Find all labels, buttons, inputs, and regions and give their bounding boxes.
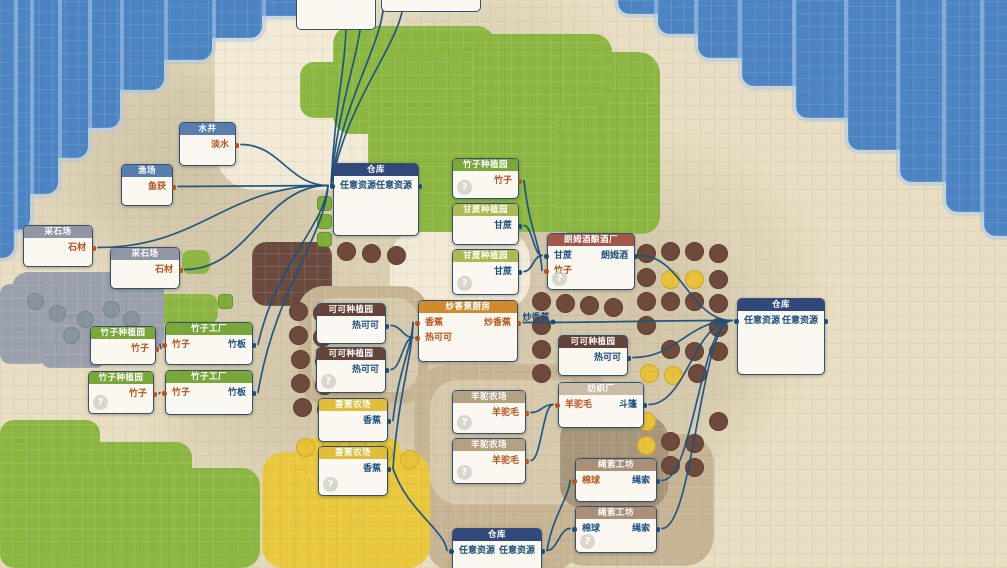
node-io-row: 香蕉 [319,414,387,429]
node-body: 热可可 [317,316,385,334]
question-badge-icon[interactable]: ? [93,395,108,410]
building-node-tex[interactable]: 纺织厂羊驼毛斗篷 [558,382,644,428]
node-io-row: 淡水 [180,138,235,153]
question-badge-icon[interactable]: ? [457,180,472,195]
node-io-row: 任意资源任意资源 [334,179,418,194]
output-resource[interactable]: 竹子 [131,342,149,357]
node-title: 竹子工厂 [166,371,252,383]
input-resource[interactable]: 任意资源 [340,179,376,194]
input-resource[interactable]: 香蕉 [425,316,443,331]
output-resource[interactable]: 任意资源 [376,179,412,194]
output-resource[interactable]: 甘蔗 [494,265,512,280]
route-resource-label: 炒香蕉 [522,310,549,323]
node-body: 棉球绳索 [576,471,656,489]
input-resource[interactable]: 竹子 [172,386,190,401]
node-io-row: 香蕉 [319,462,387,477]
input-resource[interactable]: 竹子 [172,338,190,353]
building-node-ban1[interactable]: 香蕉农场香蕉 [318,398,388,442]
node-io-row: 任意资源任意资源 [738,314,824,329]
output-resource[interactable]: 斗篷 [619,398,637,413]
node-body: 香蕉 [319,411,387,429]
input-resource[interactable]: 任意资源 [459,544,495,559]
output-resource[interactable]: 淡水 [211,138,229,153]
route-line [524,256,542,272]
building-node-wr[interactable]: 仓库任意资源任意资源 [737,298,825,375]
building-node-alp1[interactable]: 羊驼农场羊驼毛? [452,390,526,434]
building-node-bf1[interactable]: 竹子工厂竹子竹板 [165,322,253,365]
node-io-row: 甘蔗 [453,219,518,234]
output-resource[interactable]: 热可可 [352,319,379,334]
building-node-quarry2[interactable]: 采石场石材 [110,247,180,289]
node-title: 绳索工坊 [576,459,656,471]
output-resource[interactable]: 朗姆酒 [601,249,628,264]
input-resource[interactable]: 棉球 [582,474,600,489]
node-body: 竹子竹板 [166,335,252,353]
output-resource[interactable]: 竹板 [228,338,246,353]
building-node-rope1[interactable]: 绳索工坊棉球绳索 [575,458,657,502]
output-resource[interactable]: 甘蔗 [494,219,512,234]
node-title: 羊驼农场 [453,391,525,403]
node-title: 竹子种植园 [91,327,155,339]
node-body: 任意资源任意资源 [453,541,541,559]
node-title: 炒香蕉厨房 [419,301,517,313]
question-badge-icon[interactable]: ? [580,534,595,549]
question-badge-icon[interactable]: ? [552,271,567,286]
node-io-row: 竹子 [91,342,155,357]
node-io-row: 热可可 [419,331,517,346]
node-io-row: 竹子竹板 [166,386,252,401]
node-title: 香蕉农场 [319,447,387,459]
output-resource[interactable]: 石材 [68,241,86,256]
route-line [393,469,447,551]
building-node-cane1[interactable]: 甘蔗种植园甘蔗 [452,203,519,245]
building-node-well[interactable]: 水井淡水 [179,122,236,166]
output-resource[interactable]: 绳索 [632,474,650,489]
input-resource[interactable]: 羊驼毛 [565,398,592,413]
node-title: 甘蔗种植园 [453,204,518,216]
game-map-viewport[interactable]: 水井淡水渔场鱼获采石场石材采石场石材仓库任意资源任意资源竹子种植园竹子?甘蔗种植… [0,0,1007,568]
node-title: 朗姆酒酿酒厂 [548,234,634,246]
node-title: 水井 [180,123,235,135]
route-line [241,145,328,186]
building-node-bp1[interactable]: 竹子种植园竹子? [452,158,519,199]
question-badge-icon[interactable]: ? [323,477,338,492]
node-body: 任意资源任意资源 [334,176,418,194]
building-node-quarry1[interactable]: 采石场石材 [23,225,93,267]
building-node-cane2[interactable]: 甘蔗种植园甘蔗? [452,249,519,295]
node-body: 香蕉炒香蕉热可可 [419,313,517,346]
question-badge-icon[interactable]: ? [457,276,472,291]
offscreen-node-partial[interactable] [296,0,376,30]
node-title: 渔场 [122,165,172,177]
node-body: 竹子竹板 [166,383,252,401]
node-title: 香蕉农场 [319,399,387,411]
output-resource[interactable]: 热可可 [352,363,379,378]
building-node-bp3[interactable]: 竹子种植园竹子? [88,371,154,414]
building-node-kitchen[interactable]: 炒香蕉厨房香蕉炒香蕉热可可 [418,300,518,362]
node-body: 任意资源任意资源 [738,311,824,329]
node-io-row: 石材 [111,263,179,278]
node-io-row: 羊驼毛斗篷 [559,398,643,413]
node-io-row: 鱼获 [122,180,172,195]
output-resource[interactable]: 羊驼毛 [492,454,519,469]
building-node-fishery[interactable]: 渔场鱼获 [121,164,173,206]
node-title: 竹子种植园 [89,372,153,384]
input-resource[interactable]: 热可可 [425,331,452,346]
building-node-alp2[interactable]: 羊驼农场羊驼毛? [452,438,526,484]
input-resource[interactable]: 甘蔗 [554,249,572,264]
node-title: 绳索工坊 [576,507,656,519]
output-resource[interactable]: 热可可 [594,351,621,366]
node-body: 羊驼毛斗篷 [559,395,643,413]
output-resource[interactable]: 炒香蕉 [484,316,511,331]
output-resource[interactable]: 石材 [155,263,173,278]
route-line [160,345,161,349]
node-body: 甘蔗 [453,216,518,234]
output-resource[interactable]: 竹板 [228,386,246,401]
output-resource[interactable]: 任意资源 [782,314,818,329]
node-title: 采石场 [24,226,92,238]
building-node-cocoa2[interactable]: 可可种植园热可可? [316,347,386,393]
question-badge-icon[interactable]: ? [321,374,336,389]
route-line [159,393,160,394]
node-title: 羊驼农场 [453,439,525,451]
output-resource[interactable]: 绳索 [632,522,650,537]
route-line [640,256,732,321]
node-title: 可可种植园 [317,348,385,360]
building-node-rope2[interactable]: 绳索工坊棉球绳索? [575,506,657,553]
node-io-row: 竹子竹板 [166,338,252,353]
node-io-row: 石材 [24,241,92,256]
node-body: 石材 [24,238,92,256]
node-title: 仓库 [334,164,418,176]
node-io-row: 热可可 [559,351,627,366]
building-node-cocoa3[interactable]: 可可种植园热可可 [558,335,628,376]
output-resource[interactable]: 竹子 [129,387,147,402]
output-resource[interactable]: 香蕉 [363,414,381,429]
node-io-row: 棉球绳索 [576,474,656,489]
input-resource[interactable]: 任意资源 [744,314,780,329]
node-title: 纺织厂 [559,383,643,395]
offscreen-node-partial[interactable] [381,0,481,12]
route-line [547,529,570,551]
node-title: 甘蔗种植园 [453,250,518,262]
output-resource[interactable]: 鱼获 [148,180,166,195]
node-body: 淡水 [180,135,235,153]
building-node-dist[interactable]: 朗姆酒酿酒厂甘蔗朗姆酒竹子? [547,233,635,290]
building-node-cocoa1[interactable]: 可可种植园热可可 [316,303,386,344]
node-title: 仓库 [738,299,824,311]
node-body: 鱼获 [122,177,172,195]
node-body: 香蕉 [319,459,387,477]
route-line [391,326,413,338]
output-resource[interactable]: 竹子 [494,174,512,189]
node-io-row: 香蕉炒香蕉 [419,316,517,331]
output-resource[interactable]: 任意资源 [499,544,535,559]
node-body: 石材 [111,260,179,278]
question-badge-icon[interactable]: ? [457,465,472,480]
question-badge-icon[interactable]: ? [457,415,472,430]
route-waypoint-dot [551,320,556,325]
building-node-wc[interactable]: 仓库任意资源任意资源 [333,163,419,236]
output-resource[interactable]: 羊驼毛 [492,406,519,421]
building-node-bf2[interactable]: 竹子工厂竹子竹板 [165,370,253,415]
building-node-wb[interactable]: 仓库任意资源任意资源 [452,528,542,568]
node-io-row: 热可可 [317,319,385,334]
node-title: 采石场 [111,248,179,260]
node-body: 竹子 [91,339,155,357]
node-title: 仓库 [453,529,541,541]
node-title: 可可种植园 [317,304,385,316]
node-title: 竹子工厂 [166,323,252,335]
output-resource[interactable]: 香蕉 [363,462,381,477]
building-node-ban2[interactable]: 香蕉农场香蕉? [318,446,388,496]
building-node-bp2[interactable]: 竹子种植园竹子 [90,326,156,365]
node-title: 可可种植园 [559,336,627,348]
node-io-row: 任意资源任意资源 [453,544,541,559]
node-io-row: 甘蔗朗姆酒 [548,249,634,264]
node-body: 热可可 [559,348,627,366]
node-title: 竹子种植园 [453,159,518,171]
